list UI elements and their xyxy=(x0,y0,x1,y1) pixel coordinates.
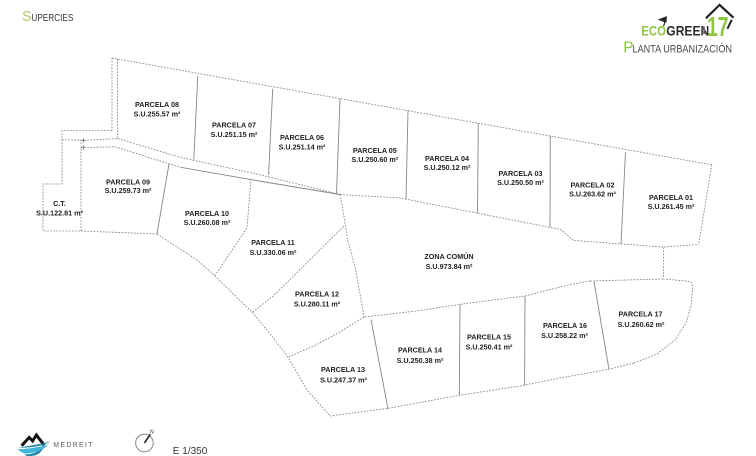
svg-text:MEDREIT: MEDREIT xyxy=(53,442,94,449)
svg-text:S.U.261.45 m²: S.U.261.45 m² xyxy=(648,202,695,211)
svg-text:PARCELA 06: PARCELA 06 xyxy=(280,133,324,142)
svg-text:PARCELA 08: PARCELA 08 xyxy=(135,100,179,109)
svg-text:PARCELA 14: PARCELA 14 xyxy=(398,346,442,355)
svg-text:S.U.250.50 m²: S.U.250.50 m² xyxy=(497,178,544,187)
svg-text:S.U.250.60 m²: S.U.250.60 m² xyxy=(351,155,398,164)
svg-text:PARCELA 17: PARCELA 17 xyxy=(619,310,663,319)
svg-text:PARCELA 07: PARCELA 07 xyxy=(212,121,256,130)
svg-text:PARCELA 11: PARCELA 11 xyxy=(251,238,295,247)
svg-text:PARCELA 15: PARCELA 15 xyxy=(467,333,511,342)
svg-text:PARCELA 13: PARCELA 13 xyxy=(321,365,365,374)
svg-text:ECO: ECO xyxy=(641,23,666,38)
svg-text:S.U.263.62 m²: S.U.263.62 m² xyxy=(569,190,616,199)
svg-text:S.U.260.08 m²: S.U.260.08 m² xyxy=(184,218,231,227)
svg-text:S.U.258.22 m²: S.U.258.22 m² xyxy=(541,331,588,340)
svg-text:S.U.280.11 m²: S.U.280.11 m² xyxy=(294,300,341,309)
svg-text:S.U.330.06 m²: S.U.330.06 m² xyxy=(250,248,297,257)
svg-text:1: 1 xyxy=(701,25,707,37)
svg-text:PARCELA 12: PARCELA 12 xyxy=(295,290,339,299)
svg-text:S.U.250.38 m²: S.U.250.38 m² xyxy=(397,356,444,365)
svg-text:ZONA COMÚN: ZONA COMÚN xyxy=(424,252,473,261)
svg-text:S.U.122.81 m²: S.U.122.81 m² xyxy=(36,209,83,218)
svg-text:PARCELA 05: PARCELA 05 xyxy=(353,146,397,155)
svg-text:PARCELA 10: PARCELA 10 xyxy=(185,209,229,218)
svg-text:S.U.973.84 m²: S.U.973.84 m² xyxy=(426,262,473,271)
svg-text:S.U.259.73 m²: S.U.259.73 m² xyxy=(105,186,152,195)
svg-text:PARCELA 01: PARCELA 01 xyxy=(649,193,693,202)
svg-text:PARCELA 04: PARCELA 04 xyxy=(425,154,469,163)
svg-text:PARCELA 03: PARCELA 03 xyxy=(499,169,543,178)
svg-text:17: 17 xyxy=(707,11,729,42)
svg-text:S.U.250.41 m²: S.U.250.41 m² xyxy=(466,343,513,352)
svg-text:LANTA URBANIZACIÓN: LANTA URBANIZACIÓN xyxy=(633,43,733,56)
svg-text:PARCELA 16: PARCELA 16 xyxy=(543,321,587,330)
svg-text:S.U.250.12 m²: S.U.250.12 m² xyxy=(424,163,471,172)
svg-text:S.U.251.15 m²: S.U.251.15 m² xyxy=(211,130,258,139)
svg-text:UPERCIES: UPERCIES xyxy=(31,13,73,24)
svg-text:S.U.260.62 m²: S.U.260.62 m² xyxy=(618,320,665,329)
svg-text:S.U.251.14 m²: S.U.251.14 m² xyxy=(279,143,326,152)
svg-text:S.U.255.57 m²: S.U.255.57 m² xyxy=(134,110,181,119)
svg-text:C.T.: C.T. xyxy=(53,199,66,208)
svg-text:N: N xyxy=(150,430,154,436)
svg-text:S: S xyxy=(22,9,32,25)
svg-text:E 1/350: E 1/350 xyxy=(173,445,208,456)
svg-text:PARCELA 02: PARCELA 02 xyxy=(571,181,615,190)
svg-text:S.U.247.37 m²: S.U.247.37 m² xyxy=(320,376,367,385)
